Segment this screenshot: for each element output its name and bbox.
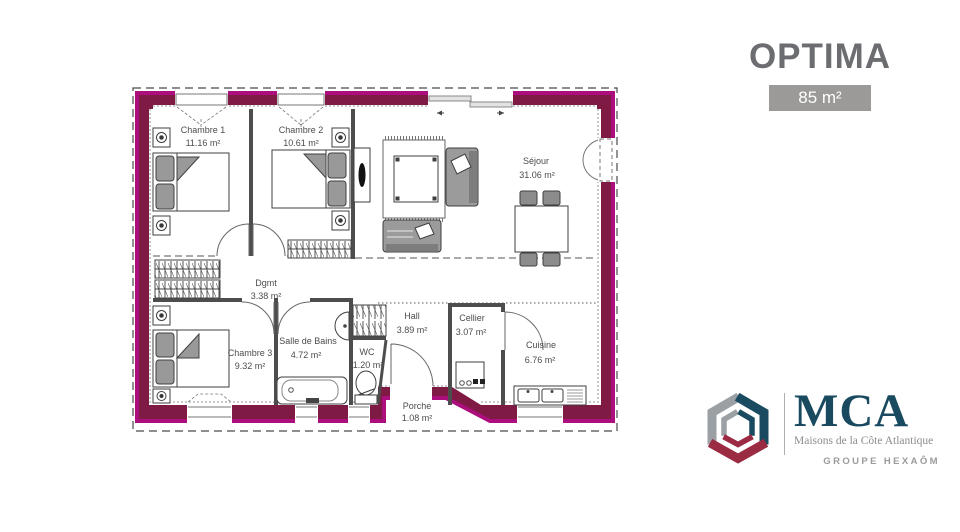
room-label-cuisine: Cuisine	[526, 340, 556, 350]
room-area-hall: 3.89 m²	[397, 325, 428, 335]
room-label-cellier: Cellier	[459, 313, 485, 323]
logo-text: MCA Maisons de la Côte Atlantique GROUPE…	[794, 390, 940, 467]
bed-chambre3	[153, 306, 229, 403]
room-label-chambre3: Chambre 3	[228, 348, 273, 358]
room-label-hall: Hall	[404, 311, 420, 321]
title-block: OPTIMA 85 m²	[738, 38, 902, 111]
mca-cube-icon	[701, 390, 775, 468]
kitchen-fixtures	[456, 362, 586, 405]
room-area-cellier: 3.07 m²	[456, 327, 487, 337]
area-badge: 85 m²	[769, 85, 871, 111]
room-area-chambre2: 10.61 m²	[283, 138, 319, 148]
page-title: OPTIMA	[738, 38, 902, 76]
room-area-wc: 1.20 m²	[353, 360, 384, 370]
room-area-dgmt: 3.38 m²	[251, 291, 282, 301]
logo-divider	[784, 393, 785, 455]
room-label-sejour: Séjour	[523, 156, 549, 166]
room-label-chambre1: Chambre 1	[181, 125, 226, 135]
room-area-chambre3: 9.32 m²	[235, 361, 266, 371]
room-area-sdb: 4.72 m²	[291, 350, 322, 360]
room-label-porche: Porche	[403, 401, 432, 411]
room-area-sejour: 31.06 m²	[519, 170, 555, 180]
room-label-sdb: Salle de Bains	[279, 336, 337, 346]
logo-tagline: Maisons de la Côte Atlantique	[794, 435, 940, 447]
room-area-cuisine: 6.76 m²	[525, 355, 556, 365]
floor-plan: Chambre 1 11.16 m² Chambre 2 10.61 m² Sé…	[125, 80, 625, 436]
room-area-chambre1: 11.16 m²	[186, 138, 221, 148]
room-label-dgmt: Dgmt	[255, 278, 277, 288]
room-area-porche: 1.08 m²	[402, 413, 433, 423]
mca-logo: MCA Maisons de la Côte Atlantique GROUPE…	[701, 390, 940, 468]
logo-group-name: GROUPE HEXAÔM	[794, 456, 940, 467]
room-label-wc: WC	[360, 347, 375, 357]
room-label-chambre2: Chambre 2	[279, 125, 324, 135]
logo-acronym: MCA	[794, 390, 940, 432]
